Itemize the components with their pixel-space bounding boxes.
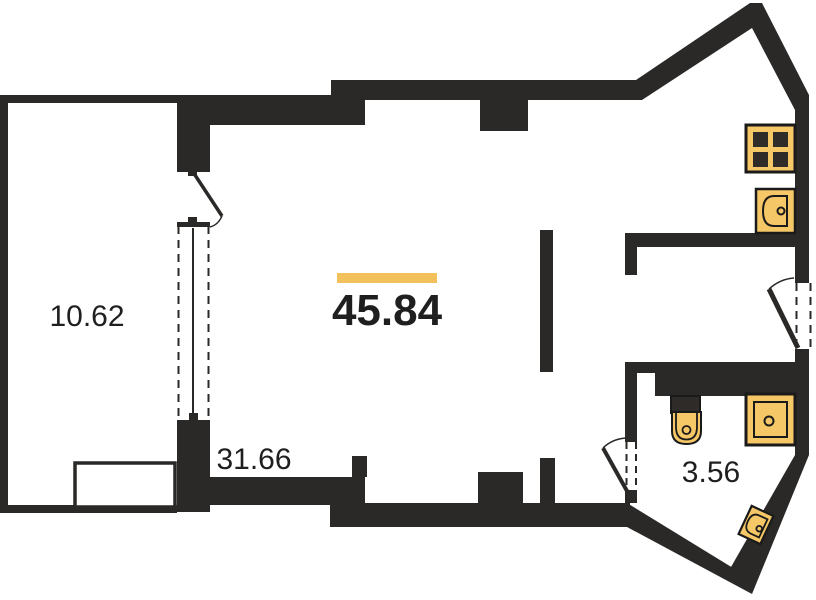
- wall-segment: [795, 275, 809, 283]
- wall-segment: [177, 125, 210, 167]
- floor-plan: 10.62 45.84 31.66 3.56: [0, 0, 816, 600]
- wall-segment: [625, 362, 637, 432]
- highlight-bar: [337, 273, 437, 283]
- area-label-lower: 31.66: [216, 443, 291, 476]
- stove-icon: [746, 125, 795, 172]
- wall-segment: [478, 472, 523, 503]
- wall-segment: [540, 458, 555, 503]
- balcony-door-swing: [193, 172, 222, 227]
- wall-segment: [189, 413, 198, 420]
- wall-segment: [540, 230, 553, 372]
- wall-segment: [177, 477, 365, 505]
- wall-segment: [627, 503, 752, 594]
- wall-segment: [625, 432, 637, 442]
- area-label-main-room: 45.84: [332, 286, 443, 335]
- kitchen-sink-icon: [756, 189, 795, 233]
- shower-tray-icon: [746, 394, 795, 445]
- wall-segment: [625, 233, 637, 275]
- wall-segment: [480, 98, 528, 131]
- wall-segment: [625, 362, 795, 373]
- wall-segment: [795, 349, 809, 357]
- wall-segment: [795, 357, 809, 455]
- wall-segment: [352, 456, 367, 477]
- wall-segment: [331, 80, 638, 100]
- wall-segment: [625, 490, 637, 503]
- wall-segment: [0, 95, 177, 103]
- toilet-icon: [671, 396, 701, 444]
- floor-plan-page: 10.62 45.84 31.66 3.56: [0, 0, 816, 600]
- wall-segment: [177, 222, 210, 227]
- bathroom-door-swing: [603, 438, 636, 491]
- wall-segment: [188, 217, 197, 222]
- wall-segment: [330, 503, 630, 527]
- area-label-balcony: 10.62: [49, 300, 124, 333]
- entry-door-swing: [769, 278, 811, 349]
- area-label-bathroom: 3.56: [682, 456, 740, 489]
- window-symbol: [179, 226, 209, 420]
- wall-segment: [625, 233, 795, 247]
- wall-segment: [0, 95, 8, 513]
- balcony-furniture: [75, 463, 175, 507]
